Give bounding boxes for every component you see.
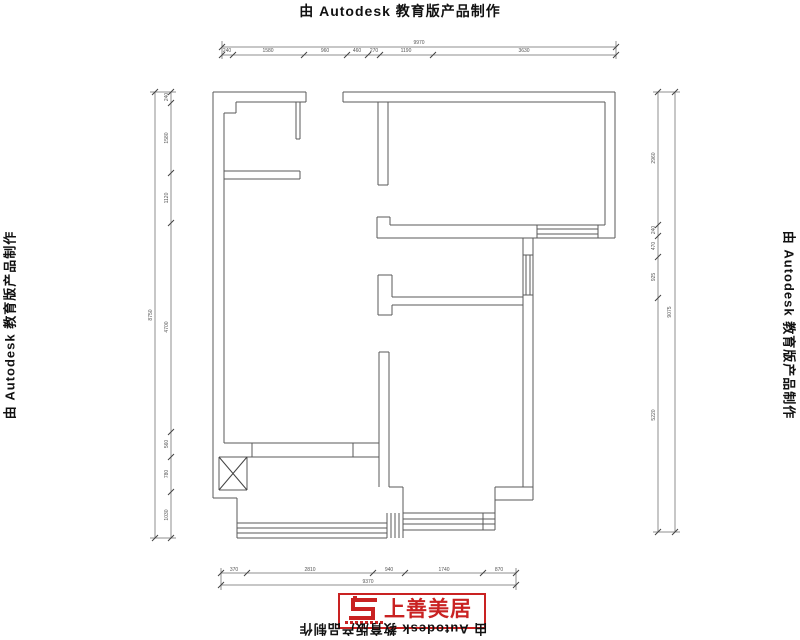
dimension-label: 960 [321,48,330,54]
dimension-label: 870 [495,567,504,573]
dimension-label: 460 [353,48,362,54]
dimension-ticks [152,44,678,588]
dimension-label: 240 [223,48,232,54]
dimension-label: 1030 [164,509,170,520]
dimension-label: 2960 [651,152,657,163]
dimension-label: 9075 [667,306,673,317]
dimension-label: 9370 [362,579,373,585]
dimension-label: 925 [651,273,657,282]
dimension-label: 780 [164,470,170,479]
dimension-label: 2810 [304,567,315,573]
dimension-label: 370 [230,567,239,573]
dimension-label: 8750 [148,309,154,320]
dimension-label: 3630 [518,48,529,54]
floor-plan-walls [213,92,615,538]
dimension-label: 1580 [262,48,273,54]
autodesk-watermark-bottom: 由 Autodesk 教育版产品制作 [299,621,487,640]
dimension-labels: 9970240158096046027011903630875024015801… [148,40,673,585]
shangshan-logo-text: 上善美居 [384,597,472,623]
floor-plan: 9970240158096046027011903630875024015801… [0,0,800,640]
dimension-label: 270 [370,48,379,54]
dimension-label: 4700 [164,321,170,332]
dimension-lines [150,41,680,590]
dimension-label: 560 [164,440,170,449]
dimension-label: 470 [651,242,657,251]
dimension-label: 240 [164,93,170,102]
window-lines [237,225,598,538]
dimension-label: 240 [651,226,657,235]
dimension-label: 1740 [438,567,449,573]
dimension-label: 5220 [651,409,657,420]
dimension-label: 1190 [401,48,412,54]
dimension-label: 9970 [413,40,424,46]
dimension-label: 1120 [164,192,170,203]
dimension-label: 940 [385,567,394,573]
column-x-diagonals [219,457,247,490]
cad-drawing-canvas: 由 Autodesk 教育版产品制作 由 Autodesk 教育版产品制作 由 … [0,0,800,640]
dimension-label: 1580 [164,132,170,143]
